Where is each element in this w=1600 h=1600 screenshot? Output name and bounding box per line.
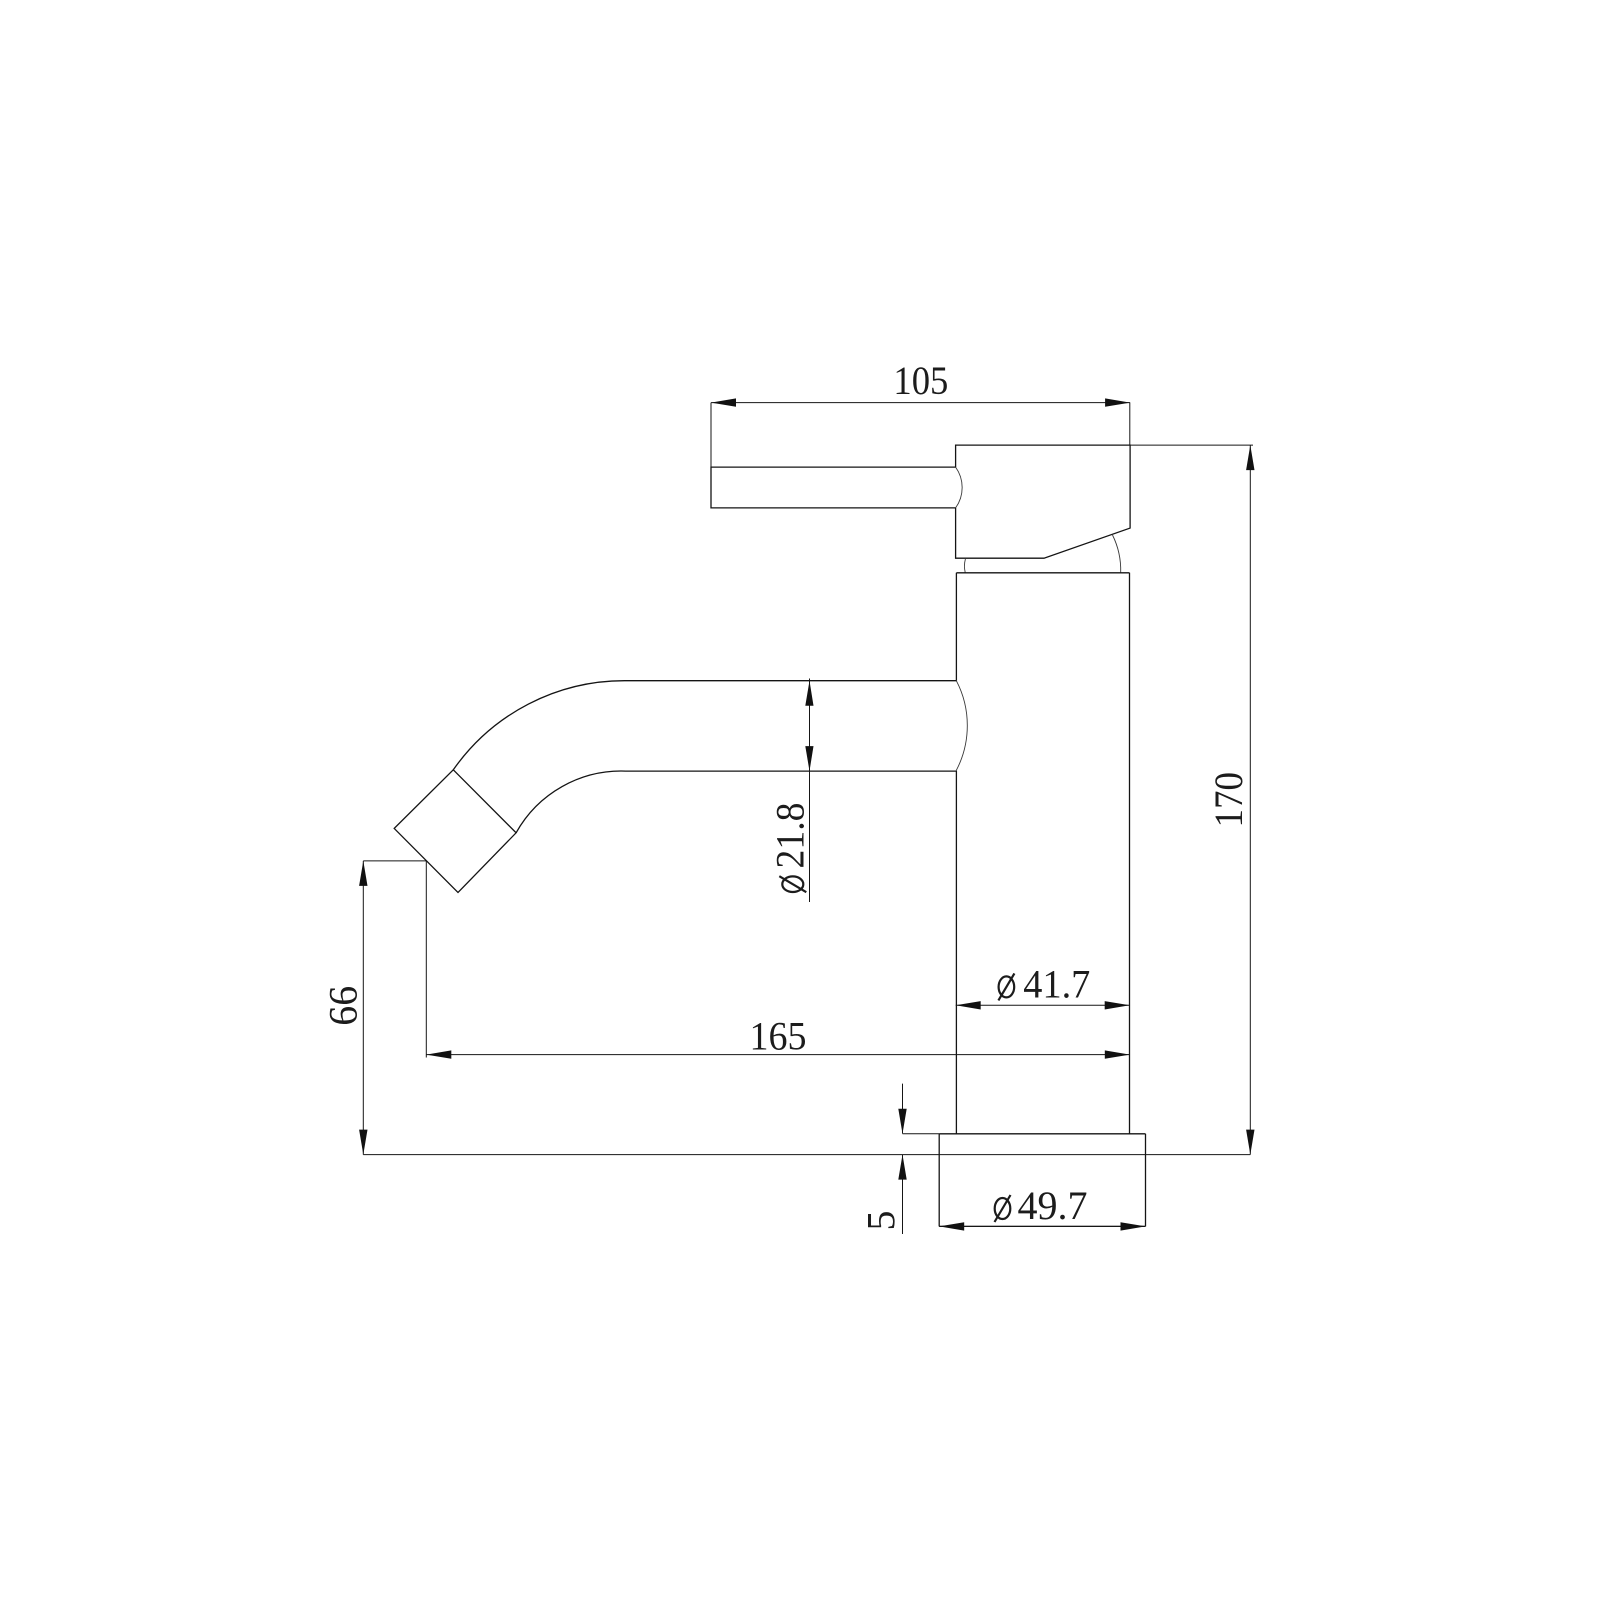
svg-text:5: 5 bbox=[859, 1211, 904, 1231]
svg-text:165: 165 bbox=[750, 1014, 807, 1059]
svg-text:105: 105 bbox=[893, 358, 948, 403]
svg-text:41.7: 41.7 bbox=[1023, 961, 1090, 1006]
svg-text:49.7: 49.7 bbox=[1018, 1183, 1088, 1228]
svg-text:170: 170 bbox=[1206, 772, 1251, 828]
svg-text:66: 66 bbox=[320, 986, 365, 1026]
svg-text:21.8: 21.8 bbox=[767, 803, 812, 869]
